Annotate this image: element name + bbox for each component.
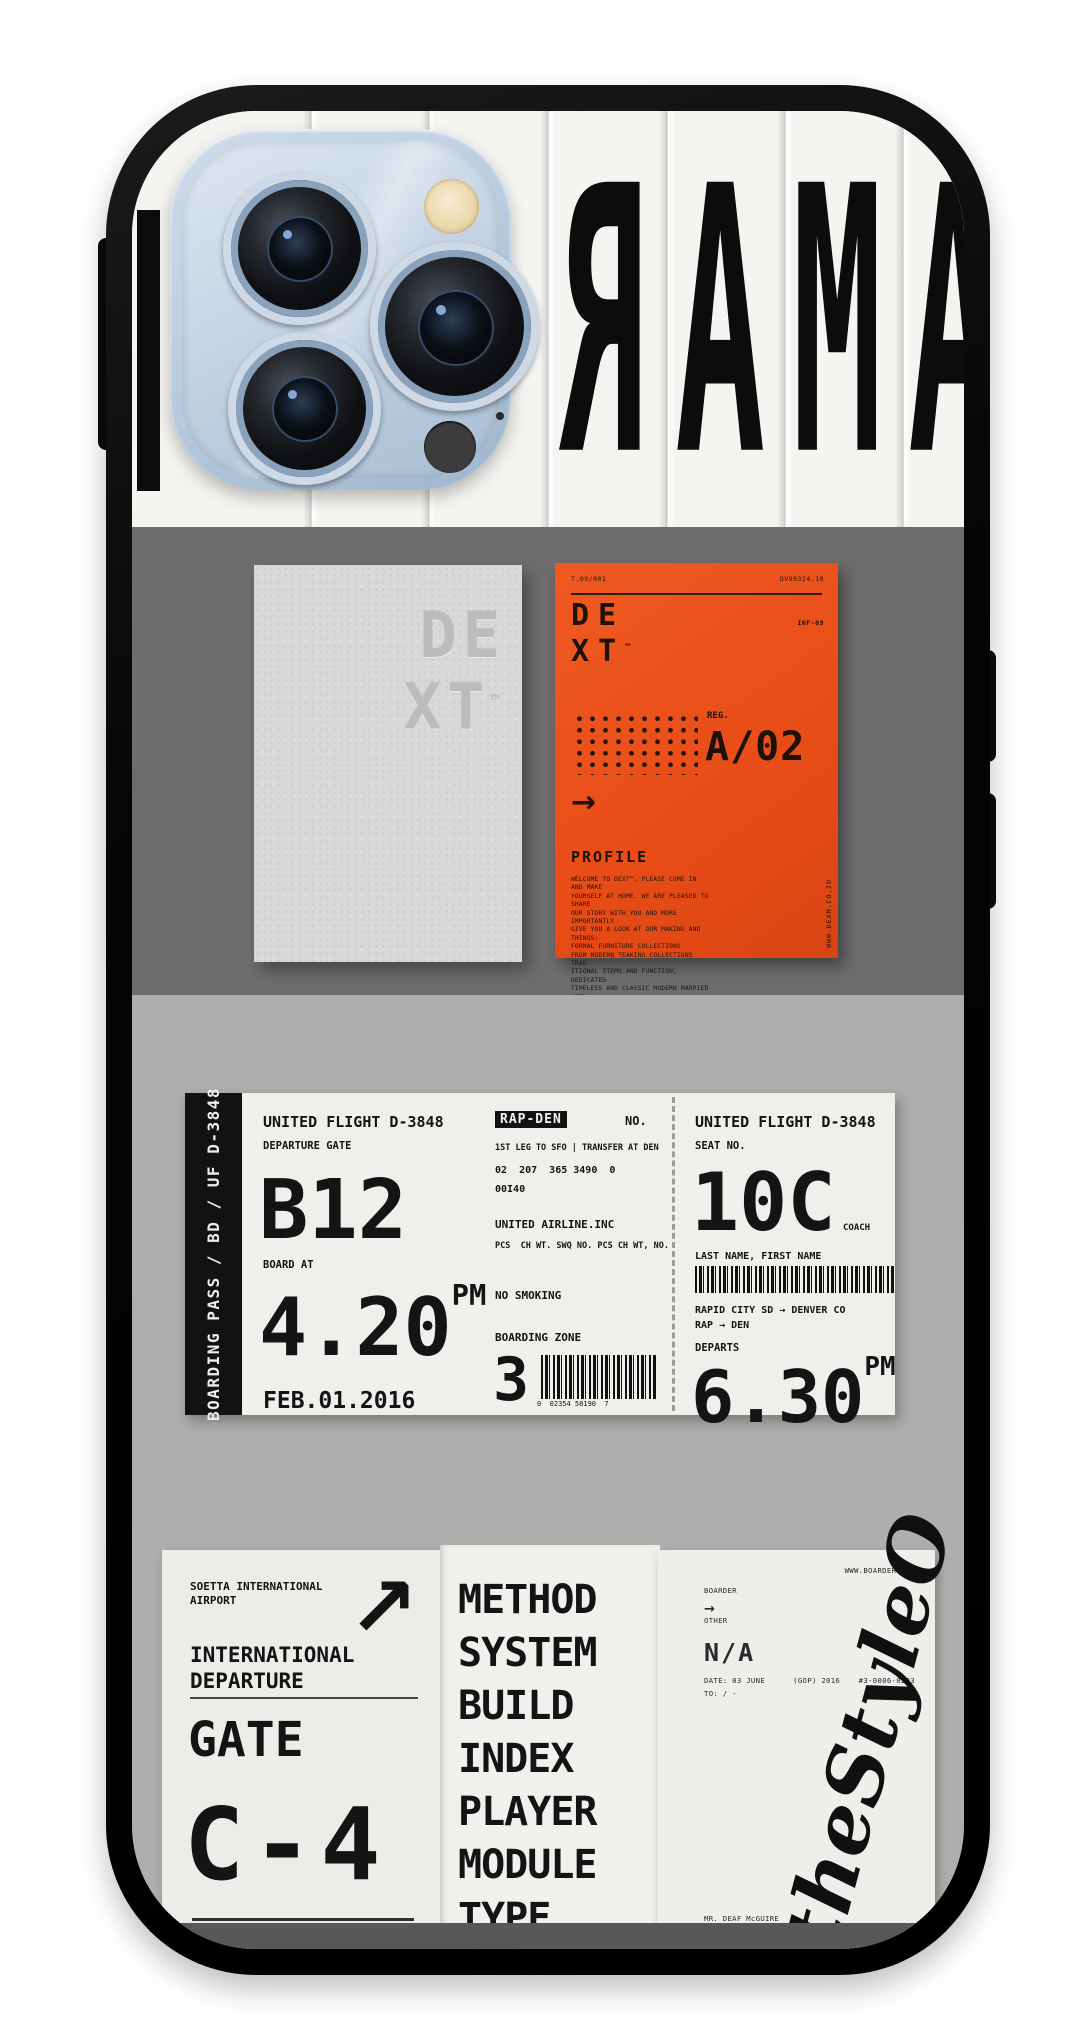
- divider: [190, 1697, 418, 1699]
- partial-letter: [137, 210, 160, 491]
- lidar-icon: [424, 421, 476, 473]
- name-label: LAST NAME, FIRST NAME: [695, 1251, 821, 1262]
- dot-grid-icon: [571, 711, 698, 775]
- seat-label: SEAT NO.: [695, 1140, 746, 1152]
- dext-paper-card: DE XT™: [254, 565, 522, 962]
- no-smoking-label: NO SMOKING: [495, 1289, 561, 1302]
- list-item: SYSTEM: [458, 1630, 597, 1676]
- departs-label: DEPARTS: [695, 1342, 739, 1354]
- gate-value: C-4: [184, 1786, 389, 1903]
- website-vertical: WWW.DEXM.CO.ID: [825, 879, 833, 948]
- case-artwork: RAMA: [132, 111, 964, 1949]
- case-inner-bezel: [132, 1923, 964, 1949]
- seat-value: 10C: [691, 1156, 836, 1249]
- serial-right: DV90324.10: [780, 575, 824, 583]
- gate-label: DEPARTURE GATE: [263, 1140, 352, 1152]
- perforation-line: [672, 1097, 675, 1411]
- departure-label: INTERNATIONAL DEPARTURE: [190, 1642, 354, 1694]
- underline: [192, 1918, 414, 1921]
- profile-label: PROFILE: [571, 848, 648, 866]
- list-item: METHOD: [458, 1577, 597, 1623]
- arrow-right-icon: →: [704, 1602, 715, 1617]
- gate-value: B12: [259, 1163, 407, 1258]
- to-line: TO: / -: [704, 1689, 737, 1699]
- board-time: 4.20PM: [259, 1281, 486, 1374]
- gate-label: GATE: [188, 1712, 304, 1768]
- serial-left: T.09/001: [571, 575, 606, 583]
- camera-lens-top-left-icon: [223, 172, 376, 325]
- flight-number: UNITED FLIGHT D-3848: [263, 1113, 444, 1131]
- pcs-line: PCS CH WT. SWQ NO. PCS CH WT, NO.: [495, 1241, 669, 1251]
- route-chip: RAP-DEN: [495, 1111, 567, 1128]
- board-at-label: BOARD AT: [263, 1259, 314, 1271]
- camera-lens-right-icon: [370, 242, 539, 411]
- embossed-logo: DE XT™: [404, 603, 506, 741]
- cabin-class: COACH: [843, 1223, 870, 1233]
- na-value: N/A: [704, 1638, 755, 1667]
- stub-barcode: [695, 1266, 895, 1293]
- mic-dot-icon: [496, 412, 504, 420]
- reg-value: A/02: [705, 724, 805, 770]
- ticket-code: 00I40: [495, 1184, 525, 1195]
- spec-list: METHOD SYSTEM BUILD INDEX PLAYER MODULE …: [440, 1545, 660, 1949]
- gate-card: SOETTA INTERNATIONAL AIRPORT ↗ INTERNATI…: [162, 1550, 440, 1935]
- arrow-up-right-icon: ↗: [348, 1558, 418, 1656]
- divider: [571, 593, 822, 595]
- flash-icon: [424, 179, 479, 234]
- inf-code: INF-09: [798, 619, 824, 627]
- product-photo: RAMA: [0, 0, 1092, 2028]
- airport-name: SOETTA INTERNATIONAL AIRPORT: [190, 1580, 322, 1608]
- dext-logo: DE XT™: [571, 599, 632, 668]
- profile-paragraph: WELCOME TO DEXT™. PLEASE COME IN AND MAK…: [571, 876, 711, 1011]
- route-short: RAP → DEN: [695, 1320, 749, 1331]
- camera-module: [170, 129, 511, 490]
- leg-info: 1ST LEG TO SFO | TRANSFER AT DEN: [495, 1143, 659, 1153]
- reg-label: REG.: [707, 711, 729, 721]
- boarding-pass-sidebar: BOARDING PASS / BD / UF D-3848: [185, 1093, 242, 1415]
- stub-flight-number: UNITED FLIGHT D-3848: [695, 1113, 876, 1131]
- depart-time: 6.30PM: [691, 1355, 896, 1439]
- boarding-pass: BOARDING PASS / BD / UF D-3848 UNITED FL…: [185, 1093, 895, 1415]
- no-label: NO.: [625, 1114, 647, 1128]
- arrow-right-icon: →: [571, 785, 596, 820]
- dext-orange-card: T.09/001 DV90324.10 DE XT™ INF-09 REG. A…: [555, 563, 838, 958]
- barcode: [541, 1355, 657, 1399]
- big-letters: RAMA: [533, 141, 964, 509]
- list-item: INDEX: [458, 1736, 573, 1782]
- ticket-numbers: 02 207 365 3490 0: [495, 1165, 615, 1176]
- boarding-zone-label: BOARDING ZONE: [495, 1331, 581, 1344]
- phone-case: RAMA: [106, 85, 990, 1975]
- list-item: MODULE: [458, 1842, 597, 1888]
- zone-value: 3: [493, 1345, 529, 1415]
- board-date: FEB.01.2016: [263, 1388, 415, 1414]
- list-item: PLAYER: [458, 1789, 597, 1835]
- airline-name: UNITED AIRLINE.INC: [495, 1218, 614, 1231]
- list-item: BUILD: [458, 1683, 573, 1729]
- barcode-digits: 0 02354 58190 7: [537, 1400, 609, 1408]
- route-full: RAPID CITY SD → DENVER CO: [695, 1305, 846, 1316]
- camera-lens-bottom-left-icon: [228, 332, 381, 485]
- date-line: DATE: 03 JUNE (GOP) 2016: [704, 1676, 840, 1686]
